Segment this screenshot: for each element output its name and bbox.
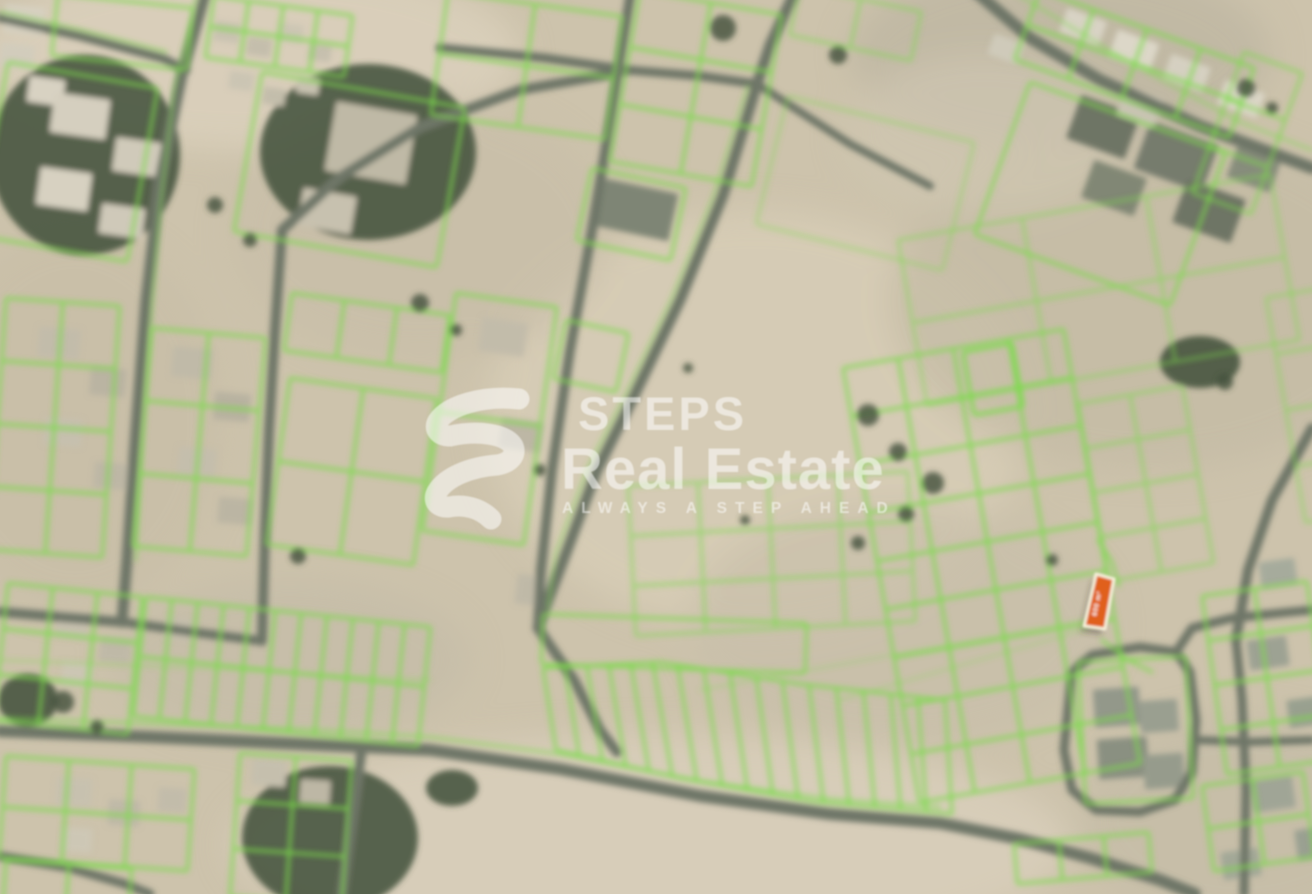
satellite-map: 600 m² STEPS Real Estate ALWAYS A STEP A… [0, 0, 1312, 894]
watermark-wordmark-top: STEPS [578, 387, 747, 440]
watermark-wordmark-bottom: Real Estate [561, 437, 885, 502]
watermark-tagline: ALWAYS A STEP AHEAD [562, 500, 896, 517]
listing-map-image: 600 m² STEPS Real Estate ALWAYS A STEP A… [0, 0, 1312, 894]
